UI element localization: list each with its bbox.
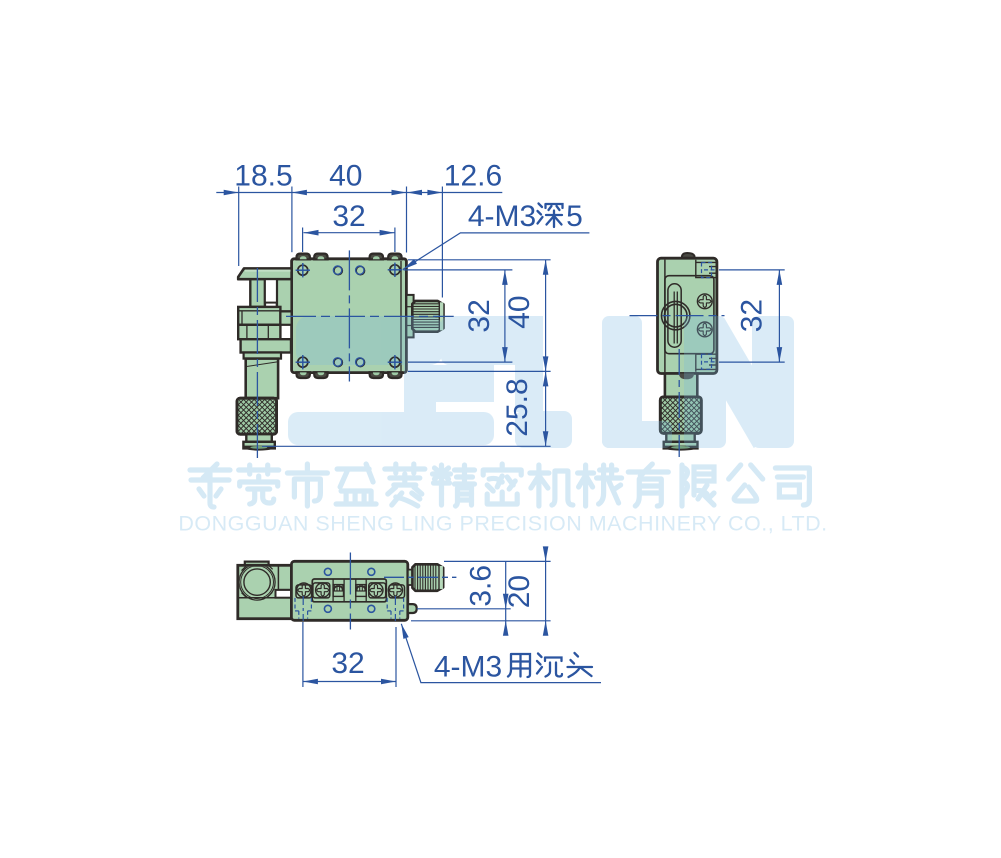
svg-text:32: 32 [331, 647, 364, 680]
svg-text:32: 32 [463, 299, 496, 332]
svg-text:40: 40 [329, 160, 362, 193]
svg-text:12.6: 12.6 [444, 160, 502, 193]
svg-text:32: 32 [332, 200, 365, 233]
svg-text:3.6: 3.6 [465, 565, 498, 607]
svg-text:4-M3: 4-M3 [434, 651, 502, 684]
svg-text:32: 32 [736, 299, 769, 332]
svg-text:5: 5 [566, 200, 583, 233]
svg-text:25.8: 25.8 [501, 378, 534, 436]
svg-text:20: 20 [503, 575, 536, 608]
svg-text:40: 40 [503, 295, 536, 328]
svg-text:DONGGUAN SHENG LING PRECISION: DONGGUAN SHENG LING PRECISION MACHINERY … [178, 512, 827, 536]
svg-text:18.5: 18.5 [234, 160, 292, 193]
svg-text:4-M3: 4-M3 [468, 200, 536, 233]
